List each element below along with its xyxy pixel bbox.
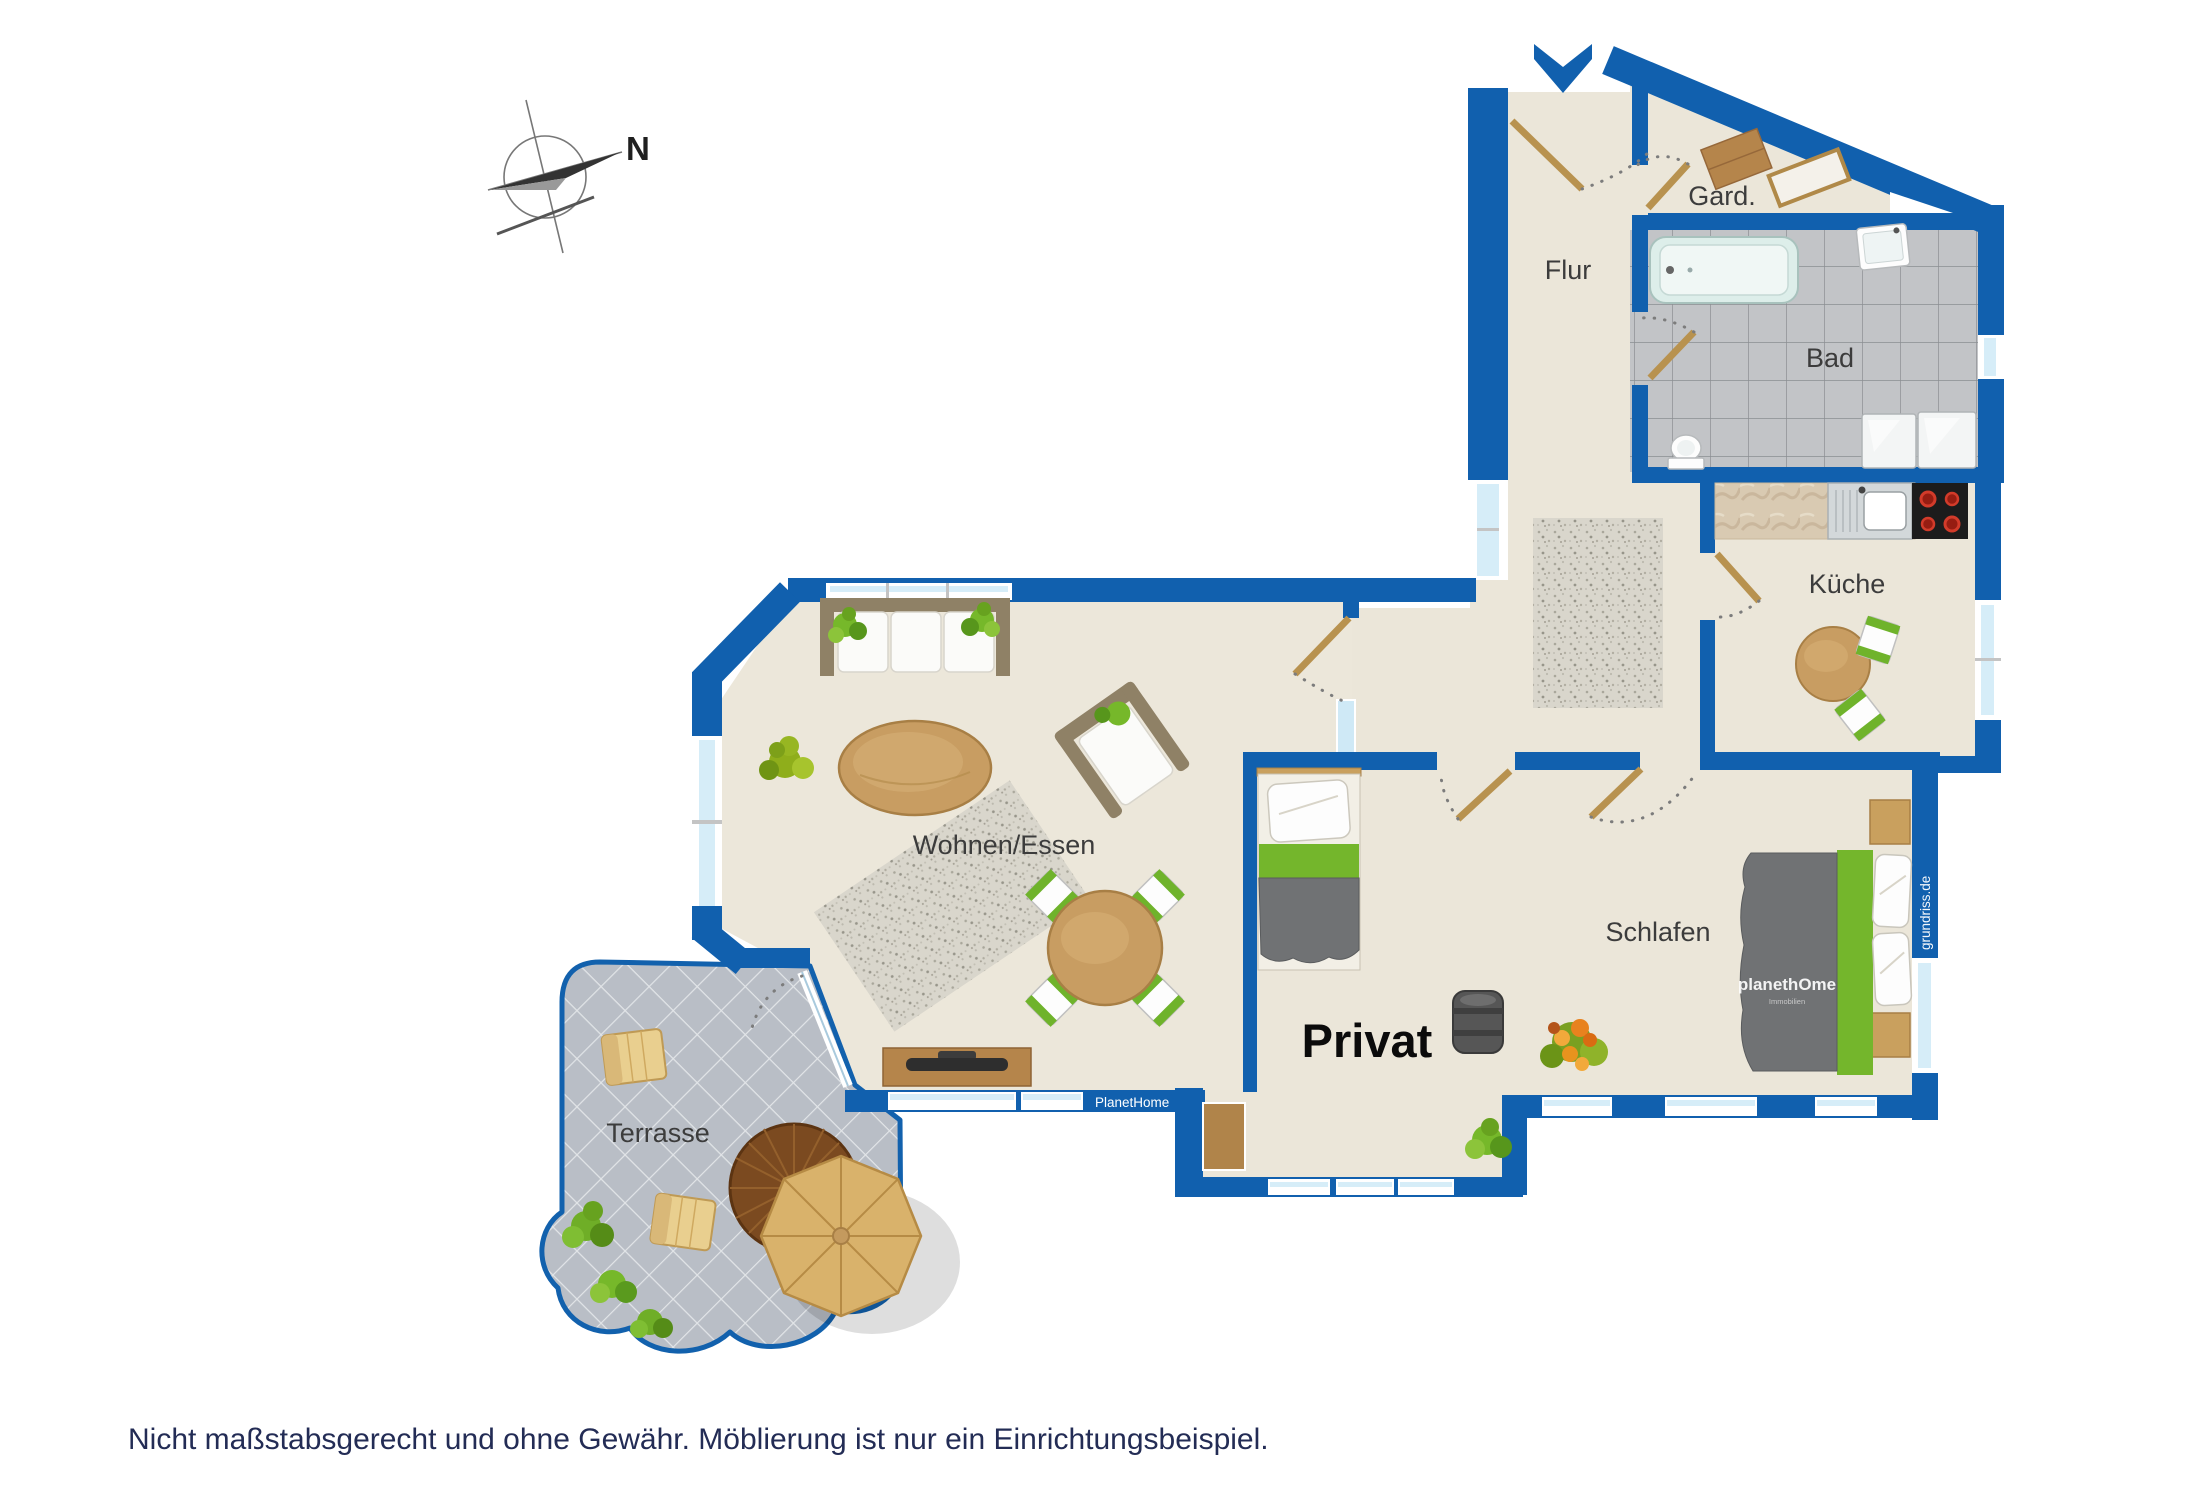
label-bad: Bad: [1806, 343, 1854, 373]
privat-left-wall: [1243, 752, 1257, 1092]
planethome-watermark-sub: Immobilien: [1769, 997, 1805, 1006]
label-privat: Privat: [1302, 1014, 1433, 1067]
sofa-window: [826, 583, 1012, 600]
floorplan-page: N Flur Gard. Bad Küche Wohnen/Essen Priv…: [0, 0, 2189, 1494]
stove: [1912, 483, 1968, 539]
grundriss-watermark: grundriss.de: [1918, 876, 1933, 950]
bad-left-wall: [1632, 385, 1648, 472]
bad-window: [1978, 335, 2004, 379]
lounge-chair: [650, 1193, 716, 1251]
bathtub: [1650, 237, 1798, 303]
label-wohnen-essen: Wohnen/Essen: [913, 830, 1096, 860]
nightstand: [1870, 800, 1910, 844]
kueche-bottom-wall: [1930, 756, 2001, 773]
living-sidelight: [1337, 700, 1355, 758]
dresser: [1203, 1103, 1245, 1170]
bad-right-wall: [1978, 379, 2004, 472]
bad-right-wall: [1978, 205, 2004, 335]
parasol: [761, 1156, 921, 1316]
label-flur: Flur: [1545, 255, 1592, 285]
single-bed: [1257, 768, 1361, 970]
sideboard-tv: [883, 1048, 1031, 1086]
coffee-table: [839, 721, 991, 815]
flur-right-wall: [1632, 64, 1648, 165]
floorplan-drawing: N Flur Gard. Bad Küche Wohnen/Essen Priv…: [0, 0, 2189, 1494]
compass-north-label: N: [626, 130, 650, 167]
barrel: [1453, 991, 1503, 1053]
kueche-right-wall: [1975, 483, 2001, 600]
bad-top-wall: [1648, 213, 2000, 230]
kitchen-counter: [1715, 483, 1915, 539]
hall-rug: [1533, 518, 1663, 708]
nightstand: [1870, 1013, 1910, 1057]
label-garderobe: Gard.: [1688, 181, 1756, 211]
corridor-wall: [1700, 752, 1940, 770]
schlafen-right-window: [1912, 958, 1938, 1073]
flur-right-wall: [1632, 215, 1648, 312]
living-bottom-windows: [888, 1092, 1083, 1110]
label-terrasse: Terrasse: [606, 1118, 710, 1148]
lounge-chair: [601, 1029, 667, 1086]
label-kueche: Küche: [1809, 569, 1886, 599]
bay-wall: [692, 672, 722, 736]
planethome-sill-text: PlanetHome: [1095, 1095, 1169, 1110]
kueche-left-wall: [1700, 483, 1715, 553]
bay-window: [692, 736, 722, 914]
label-schlafen: Schlafen: [1605, 917, 1710, 947]
entrance-arrow-icon: [1534, 44, 1592, 93]
sofa: [820, 598, 1010, 676]
living-door-stub: [1343, 602, 1359, 618]
corridor-wall: [1250, 752, 1437, 770]
hall-interior-window: [1468, 480, 1508, 580]
planethome-watermark-text: planethOme: [1738, 975, 1836, 994]
disclaimer-text: Nicht maßstabsgerecht und ohne Gewähr. M…: [128, 1423, 1269, 1456]
toilet: [1668, 435, 1704, 469]
kueche-left-wall: [1700, 620, 1715, 768]
bay-bottom-wall: [728, 948, 810, 968]
privat-windows: [1268, 1179, 1454, 1195]
shower-trays: [1862, 412, 1976, 468]
bathroom-sink: [1856, 223, 1910, 270]
compass: N: [488, 100, 650, 253]
dining-table: [1025, 869, 1185, 1027]
schlafen-windows: [1542, 1097, 1877, 1116]
corridor-wall: [1515, 752, 1640, 770]
flur-left-wall: [1468, 88, 1508, 480]
kueche-window: [1975, 600, 2001, 720]
